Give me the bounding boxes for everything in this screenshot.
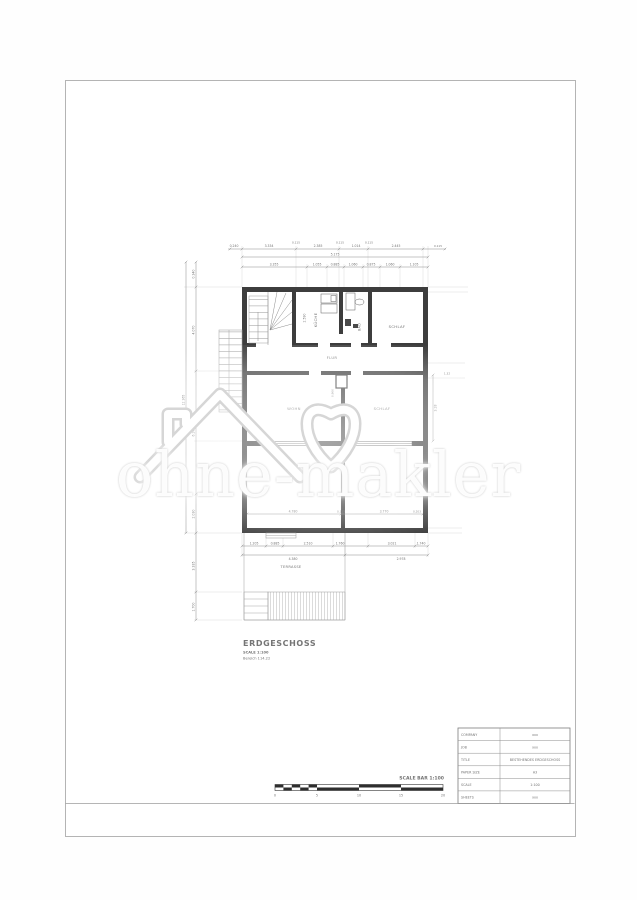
dim-value: 0.115 — [337, 510, 345, 514]
room-label-flur: FLUR — [327, 355, 338, 360]
dim-value: 0.115 — [365, 241, 373, 245]
titleblock-value: BESTEHENDES ERDGESCHOSS — [510, 758, 561, 762]
drawing-title: ERDGESCHOSS SCALE 1:100 Bereich 114.22 — [243, 639, 316, 661]
dim-value: 1.760 — [336, 542, 345, 546]
dim-value: 1.055 — [313, 263, 322, 267]
dim-value: 3.334 — [265, 244, 274, 248]
kitchen-fixtures — [321, 294, 337, 313]
scale-bar: SCALE BAR 1:100 0 5 10 15 20 — [274, 776, 445, 798]
dim-value: 2.445 — [392, 244, 401, 248]
titleblock-label: COMPANY — [461, 733, 478, 737]
dim-value: 1.105 — [410, 263, 419, 267]
dim-value: 0.960 — [331, 389, 335, 397]
titleblock-value: 1:100 — [530, 783, 540, 787]
dim-value: 1.32 — [444, 372, 450, 376]
dim-value: 4.380 — [289, 557, 298, 561]
scale-tick: 0 — [274, 794, 276, 798]
page-title: ERDGESCHOSS — [243, 639, 316, 648]
dim-value: 0.115 — [336, 241, 344, 245]
interior-stairs — [249, 292, 292, 345]
room-label-schlaf1: SCHLAF — [389, 324, 406, 329]
terrace-door-threshold — [266, 533, 296, 538]
titleblock-label: TITLE — [460, 758, 470, 762]
dim-value: 2.030 — [192, 510, 196, 519]
top-dimensions: 0.240 3.334 0.115 2.385 0.115 1.014 0.11… — [230, 241, 443, 267]
dim-value: 4.780 — [289, 510, 298, 514]
titleblock-value: xxx — [532, 796, 538, 800]
titleblock-value: xxx — [532, 745, 538, 749]
titleblock-value: A3 — [533, 771, 537, 775]
dim-value: 1.700 — [192, 603, 196, 612]
scale-bar-label: SCALE BAR 1:100 — [399, 776, 444, 782]
titleblock-label: SHEETS — [461, 796, 474, 800]
titleblock-label: JOB — [460, 745, 468, 749]
dim-value: 0.240 — [230, 244, 239, 248]
dimension-lines — [186, 249, 446, 620]
floor-plan-drawing: 0.240 3.334 0.115 2.385 0.115 1.014 0.11… — [0, 0, 637, 900]
area-note: Bereich 114.22 — [243, 657, 270, 661]
dim-value: 3.28 — [434, 405, 438, 412]
dim-value: 2.978 — [397, 557, 406, 561]
dim-value: 3.770 — [380, 510, 389, 514]
dim-value: 1.014 — [352, 244, 361, 248]
dim-value: 0.203 — [413, 510, 421, 514]
bathroom-fixtures — [345, 293, 364, 328]
room-label-terrasse: TERRASSE — [279, 565, 301, 569]
dim-value: 4.070 — [192, 326, 196, 335]
room-label-wohn: WOHN — [287, 406, 301, 411]
bottom-dimensions: 1.205 0.885 2.510 1.760 3.021 1.740 4.38… — [250, 542, 426, 562]
titleblock-value: xxx — [532, 733, 538, 737]
dim-value: 0.875 — [367, 263, 376, 267]
scale-tick: 15 — [399, 794, 403, 798]
dim-value: 2.590 — [303, 314, 307, 323]
scale-tick: 10 — [357, 794, 361, 798]
dim-value: 3.335 — [192, 562, 196, 571]
titleblock-label: SCALE — [461, 783, 472, 787]
dim-value: 12.365 — [182, 395, 186, 406]
scale-tick: 5 — [316, 794, 318, 798]
room-label-kueche: KÜCHE — [313, 312, 318, 327]
dim-value: 3.355 — [270, 263, 279, 267]
title-block: COMPANY JOB TITLE PAPER SIZE SCALE SHEET… — [458, 728, 570, 804]
dim-value: 5.175 — [331, 253, 340, 257]
dim-value: 1.060 — [349, 263, 358, 267]
exterior-stairs — [219, 330, 242, 412]
right-dimensions: 1.32 3.28 — [434, 372, 451, 412]
scale-tick: 20 — [441, 794, 445, 798]
room-label-bad: BAD — [358, 323, 362, 331]
scanned-floor-plan-page: 0.240 3.334 0.115 2.385 0.115 1.014 0.11… — [0, 0, 637, 900]
dim-value: 0.885 — [331, 263, 340, 267]
dim-value: 6.240 — [192, 428, 196, 437]
dim-value: 3.021 — [388, 542, 397, 546]
dim-value: 1.205 — [250, 542, 259, 546]
left-dimensions: 12.365 0.340 4.070 6.240 2.030 3.335 1.7… — [182, 270, 196, 612]
dim-value: 0.340 — [192, 270, 196, 279]
dim-value: 0.115 — [292, 241, 300, 245]
dim-value: 0.885 — [271, 542, 280, 546]
dim-value: 1.740 — [417, 542, 426, 546]
dim-value: 2.510 — [304, 542, 313, 546]
titleblock-label: PAPER SIZE — [461, 771, 480, 775]
dim-value: 0.115 — [434, 244, 442, 248]
dim-value: 2.385 — [314, 244, 323, 248]
room-label-schlaf2: SCHLAF — [374, 406, 391, 411]
scale-note: SCALE 1:100 — [243, 651, 269, 655]
dim-value: 1.060 — [386, 263, 395, 267]
